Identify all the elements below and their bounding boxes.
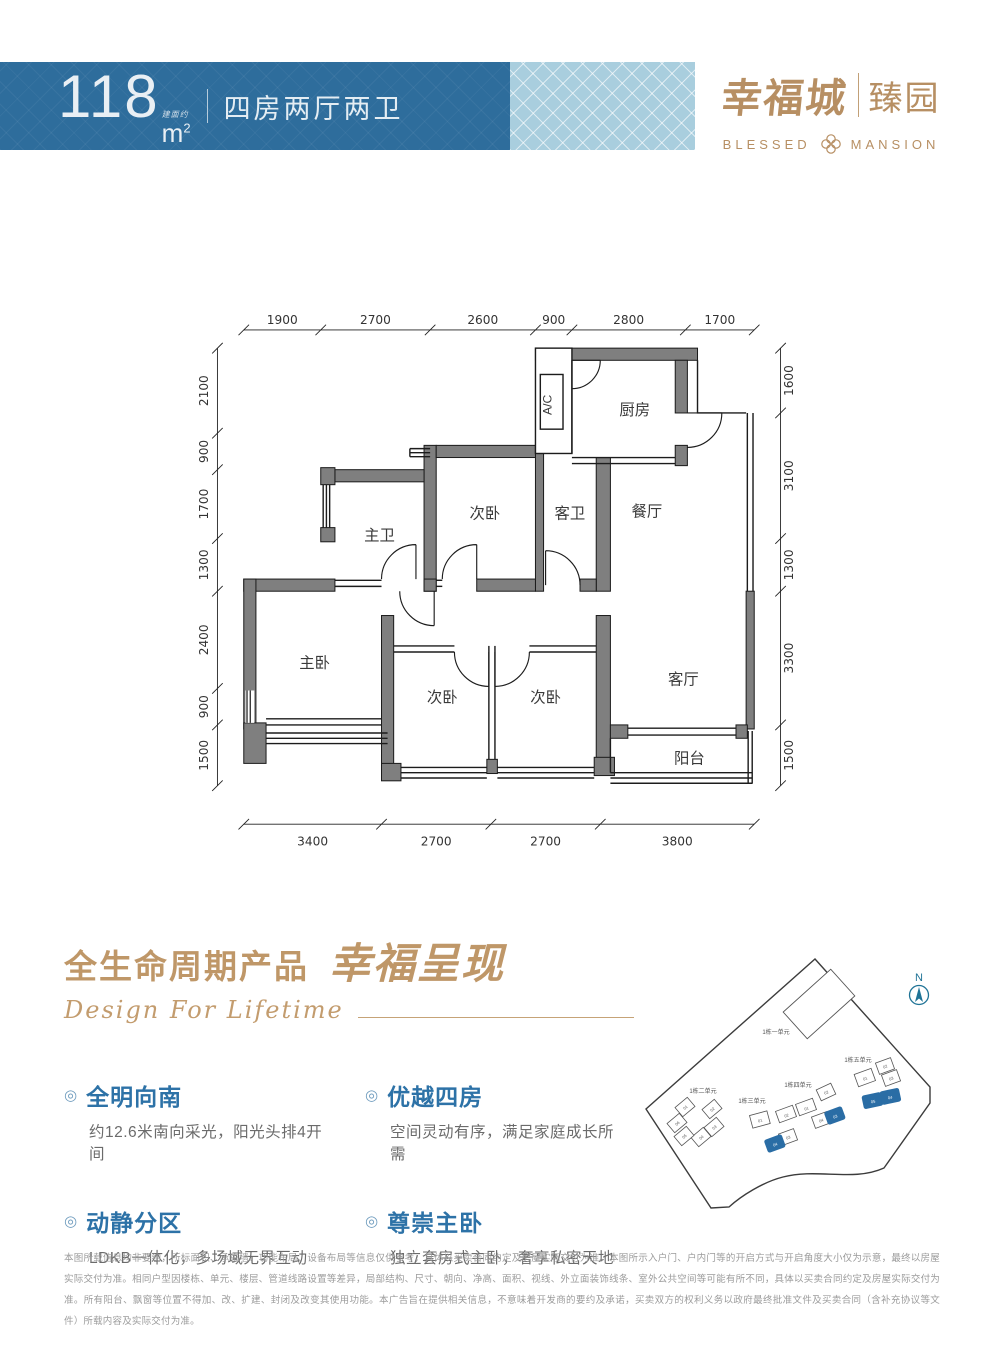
svg-text:900: 900: [197, 440, 211, 463]
brand-logo: 幸福城 臻园 BLESSED MANSION: [706, 66, 956, 155]
room-ac: A/C: [541, 395, 555, 415]
svg-text:3800: 3800: [662, 835, 693, 849]
banner-blue-block: 118 建面约 m2 四房两厅两卫: [0, 62, 510, 150]
area-unit-m: m2: [162, 120, 191, 146]
feature-item: ◎ 全明向南 约12.6米南向采光，阳光头排4开间: [64, 1078, 329, 1164]
feature-list: ◎ 全明向南 约12.6米南向采光，阳光头排4开间 ◎ 优越四房 空间灵动有序，…: [64, 1078, 624, 1268]
feature-title: 动静分区: [86, 1204, 182, 1238]
building-label: 1栋五单元: [844, 1056, 871, 1064]
building-label: 1栋二单元: [689, 1087, 716, 1095]
feature-item: ◎ 优越四房 空间灵动有序，满足家庭成长所需: [365, 1078, 624, 1164]
north-label: N: [915, 972, 923, 984]
layout-text: 四房两厅两卫: [224, 87, 404, 126]
area-unit: 建面约 m2: [162, 111, 191, 146]
svg-text:2700: 2700: [421, 835, 452, 849]
svg-text:2800: 2800: [613, 313, 644, 327]
feature-title: 优越四房: [387, 1078, 483, 1112]
building-label: 1栋一单元: [762, 1028, 789, 1036]
svg-text:1300: 1300: [197, 549, 211, 580]
svg-text:1300: 1300: [782, 549, 796, 580]
svg-text:1500: 1500: [197, 740, 211, 771]
section-title-en: Design For Lifetime: [64, 996, 344, 1024]
svg-text:2600: 2600: [467, 313, 498, 327]
section-title-cn: 全生命周期产品: [64, 940, 309, 988]
ring-bullet-icon: ◎: [365, 1214, 378, 1229]
svg-text:3300: 3300: [782, 643, 796, 674]
room-living: 客厅: [668, 670, 699, 688]
floorplan: 1900 2700 2600 900 2800 1700 3400 2700 2…: [183, 288, 815, 860]
area-note: 建面约: [162, 111, 189, 119]
room-bedroom-top: 次卧: [469, 504, 500, 522]
feature-desc: 约12.6米南向采光，阳光头排4开间: [89, 1120, 329, 1164]
ring-bullet-icon: ◎: [365, 1088, 378, 1103]
feature-title: 全明向南: [86, 1078, 182, 1112]
master-bedroom-left-window: [245, 690, 254, 722]
ring-bullet-icon: ◎: [64, 1214, 77, 1229]
disclaimer-text: 本图所载信息均非要约，所标面积、承重墙、功能布局、设备布局等信息仅供参考，具体以…: [64, 1248, 940, 1332]
room-bedroom-left: 次卧: [427, 689, 458, 707]
svg-text:1700: 1700: [704, 313, 735, 327]
svg-text:1700: 1700: [197, 489, 211, 520]
logo-divider: [858, 73, 859, 117]
svg-text:3400: 3400: [297, 835, 328, 849]
logo-en-right: MANSION: [851, 137, 940, 152]
banner-pattern-block: [510, 62, 695, 150]
room-dining: 餐厅: [631, 502, 662, 520]
svg-text:1500: 1500: [782, 740, 796, 771]
room-bedroom-right: 次卧: [530, 689, 561, 707]
svg-text:2100: 2100: [197, 375, 211, 406]
room-balcony: 阳台: [674, 749, 705, 767]
top-banner: 118 建面约 m2 四房两厅两卫: [0, 62, 695, 150]
feature-desc: 空间灵动有序，满足家庭成长所需: [390, 1120, 624, 1164]
north-compass-icon: N: [910, 972, 929, 1005]
svg-text:2700: 2700: [530, 835, 561, 849]
room-master-bath: 主卫: [364, 527, 395, 545]
logo-cn-sub: 臻园: [869, 71, 941, 120]
floorplan-drawing: 1900 2700 2600 900 2800 1700 3400 2700 2…: [183, 288, 815, 860]
area-figure: 118 建面约 m2: [58, 67, 191, 146]
banner-divider: [207, 89, 208, 123]
building-label: 1栋三单元: [738, 1097, 765, 1105]
building-label: 1栋四单元: [784, 1081, 811, 1089]
svg-text:900: 900: [542, 313, 565, 327]
room-kitchen: 厨房: [619, 401, 650, 419]
ring-bullet-icon: ◎: [64, 1088, 77, 1103]
room-master-bedroom: 主卧: [299, 654, 330, 672]
gold-divider-line: [358, 1017, 634, 1018]
svg-text:2700: 2700: [360, 313, 391, 327]
site-plan: 1栋一单元 1栋二单元 01 02 03 04 05 06 1栋三单元 01 0…: [633, 956, 963, 1231]
svg-text:1600: 1600: [782, 365, 796, 396]
section-title-script: 幸福呈现: [329, 943, 505, 985]
walls: [244, 348, 754, 781]
svg-text:1900: 1900: [267, 313, 298, 327]
clover-flower-icon: [820, 133, 842, 155]
svg-text:900: 900: [197, 695, 211, 718]
svg-text:2400: 2400: [197, 624, 211, 655]
room-guest-bath: 客卫: [555, 504, 586, 522]
logo-cn-main: 幸福城: [718, 66, 850, 124]
section-title-block: 全生命周期产品 幸福呈现 Design For Lifetime: [64, 940, 634, 1024]
logo-en-left: BLESSED: [723, 137, 811, 152]
feature-title: 尊崇主卧: [387, 1204, 483, 1238]
site-plan-drawing: 1栋一单元 1栋二单元 01 02 03 04 05 06 1栋三单元 01 0…: [633, 956, 963, 1231]
svg-text:3100: 3100: [782, 460, 796, 491]
area-value: 118: [58, 67, 160, 127]
